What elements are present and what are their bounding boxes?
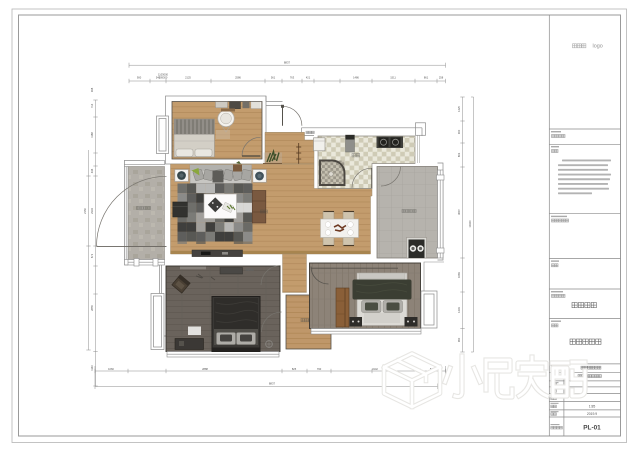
- svg-text:PL-01: PL-01: [583, 425, 601, 432]
- svg-text:3142: 3142: [372, 367, 378, 371]
- svg-text:8837: 8837: [284, 60, 291, 64]
- svg-text:logo: logo: [593, 44, 603, 50]
- svg-text:861: 861: [424, 75, 429, 79]
- svg-text:2586: 2586: [235, 75, 241, 79]
- svg-text:2150: 2150: [83, 208, 87, 214]
- svg-text:1433: 1433: [457, 307, 461, 313]
- svg-text:398: 398: [90, 87, 94, 92]
- svg-text:1486: 1486: [353, 75, 359, 79]
- svg-text:1683: 1683: [457, 272, 461, 278]
- svg-text:1425: 1425: [457, 106, 461, 112]
- svg-text:10300: 10300: [468, 220, 472, 228]
- svg-text:421: 421: [306, 75, 311, 79]
- svg-text:2019.9: 2019.9: [587, 412, 597, 416]
- svg-text:825: 825: [292, 367, 297, 371]
- svg-text:900: 900: [457, 129, 461, 134]
- svg-text:561: 561: [271, 75, 276, 79]
- svg-text:1140: 1140: [90, 365, 94, 371]
- svg-text:1511: 1511: [390, 75, 396, 79]
- svg-text:2888: 2888: [202, 367, 208, 371]
- svg-text:900: 900: [137, 75, 142, 79]
- svg-text:2125: 2125: [185, 75, 191, 79]
- svg-text:790: 790: [317, 367, 322, 371]
- svg-text:8837: 8837: [269, 382, 276, 386]
- svg-text:2334: 2334: [90, 208, 94, 214]
- svg-text:1:85: 1:85: [589, 405, 596, 409]
- svg-text:436: 436: [90, 168, 94, 173]
- svg-text:714: 714: [90, 103, 94, 108]
- svg-text:763: 763: [290, 75, 295, 79]
- svg-text:960: 960: [457, 337, 461, 342]
- svg-text:803: 803: [457, 152, 461, 157]
- svg-text:3697: 3697: [457, 209, 461, 215]
- svg-text:2855: 2855: [90, 305, 94, 311]
- svg-text:1060: 1060: [108, 367, 114, 371]
- svg-text:1188: 1188: [90, 132, 94, 138]
- svg-text:672: 672: [90, 253, 94, 258]
- svg-text:109300: 109300: [159, 75, 168, 79]
- svg-text:258: 258: [439, 75, 444, 79]
